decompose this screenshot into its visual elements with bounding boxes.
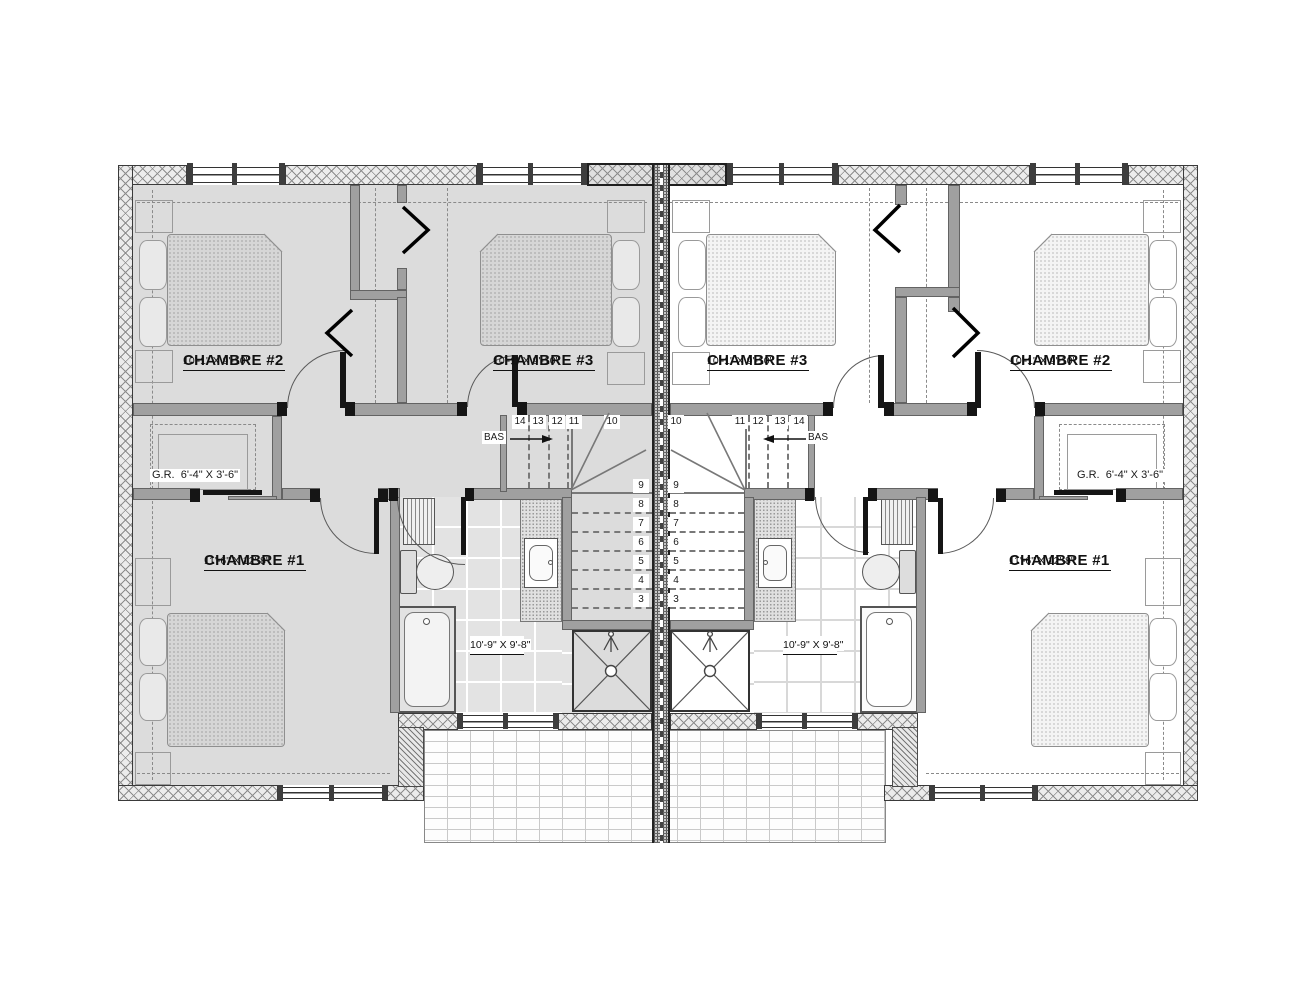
room-dims: 10'-9" X 9'-8"	[470, 639, 531, 651]
stair-number: 11	[566, 415, 582, 429]
closet-wall-l3	[397, 297, 407, 403]
window-post	[477, 163, 483, 185]
room-dims: 10'-1" X 9'-10"	[493, 355, 559, 367]
closet-stub-l1	[397, 185, 407, 203]
stair-tread	[670, 607, 744, 609]
bed-ch1-left	[167, 613, 285, 747]
stair-tread	[572, 512, 652, 514]
stair-tread	[670, 531, 744, 533]
wall-stair-left	[562, 497, 572, 623]
wall-right	[1183, 165, 1198, 801]
bas-label-right: BAS	[806, 431, 830, 444]
window-post	[779, 163, 784, 185]
wall-top-3	[838, 165, 1030, 185]
wall-stair-bottom-right	[670, 620, 754, 630]
bathtub-drain-right	[886, 618, 893, 625]
stair-number: 10	[668, 415, 684, 429]
room-dims: 10'-9" X 9'-8"	[783, 639, 844, 651]
window-bath-left	[458, 715, 558, 728]
window-post	[980, 785, 985, 801]
pillow	[678, 297, 706, 347]
wall-bath-bottom-l2	[558, 713, 652, 730]
pillow	[612, 297, 640, 347]
bathtub-inner-left	[404, 612, 450, 707]
stair-number: 6	[668, 536, 684, 550]
nightstand	[1145, 752, 1181, 785]
door-jamb	[823, 402, 833, 416]
window-post	[187, 163, 193, 185]
wall-stair-edge-right	[808, 415, 815, 492]
stair-tread	[572, 569, 652, 571]
gr-slider-right	[1054, 490, 1113, 495]
door-jamb	[996, 489, 1006, 502]
door-leaf-sbain-left	[461, 497, 466, 555]
window-post	[1032, 785, 1037, 801]
door-jamb	[517, 402, 527, 416]
pillow	[139, 618, 167, 666]
stair-number: 12	[750, 415, 766, 429]
window-post	[553, 713, 558, 729]
stair-number: 6	[633, 536, 649, 550]
wall-jog-left	[398, 727, 424, 787]
window-post	[1075, 163, 1080, 185]
gr-slider-right-2	[1039, 496, 1088, 500]
nightstand	[135, 200, 173, 233]
window-post	[581, 163, 587, 185]
wall-gr-right	[1034, 416, 1044, 500]
window-post	[329, 785, 334, 801]
stair-number: 4	[633, 574, 649, 588]
closet-wall-r3	[895, 297, 907, 403]
wall-stair-edge-left	[500, 415, 507, 492]
nightstand	[1143, 350, 1181, 383]
closet-wall-r1	[948, 185, 960, 297]
window-post	[232, 163, 237, 185]
bas-label-left: BAS	[482, 431, 506, 444]
closet-dash-l2	[447, 188, 448, 403]
door-jamb	[389, 488, 398, 501]
room-dims: 11'-6" X 12'-8"	[1009, 555, 1075, 567]
wall-stair-right	[744, 497, 754, 623]
wall-bottom-3	[884, 785, 930, 801]
stair-number: 4	[668, 574, 684, 588]
window-post	[279, 163, 285, 185]
stair-number: 8	[633, 498, 649, 512]
party-wall-centerline	[660, 165, 663, 843]
wall-h1-l2	[345, 403, 467, 416]
linen-louver-right	[881, 498, 913, 545]
door-jamb	[1035, 402, 1045, 416]
stair-tread	[572, 531, 652, 533]
door-leaf-ch1-right	[938, 498, 943, 554]
gr-slider-left	[203, 490, 262, 495]
wall-h2-r4	[1116, 488, 1183, 500]
wall-top-2	[285, 165, 477, 185]
room-dims: 10'-1" X 9'-10"	[183, 355, 249, 367]
stair-number: 7	[668, 517, 684, 531]
wall-bath-bottom-r1	[670, 713, 757, 730]
wall-jog-right	[892, 727, 918, 787]
nightstand	[135, 350, 173, 383]
door-leaf-ch2-right	[975, 352, 981, 408]
window-post	[278, 785, 283, 801]
gr-jamb-right	[1116, 489, 1126, 502]
window-post	[757, 713, 762, 729]
window-post	[528, 163, 533, 185]
window-post	[930, 785, 935, 801]
stair-tread	[670, 569, 744, 571]
closet-wall-l1	[350, 185, 360, 300]
stair-number: 8	[668, 498, 684, 512]
window-post	[852, 713, 857, 729]
wall-gr-left	[272, 416, 282, 500]
window-post	[503, 713, 508, 729]
door-leaf-ch1-left	[374, 498, 379, 554]
stair-number: 11	[732, 415, 748, 429]
stair-tread	[572, 607, 652, 609]
kneewall-dash-top-left	[137, 202, 647, 203]
window-post	[832, 163, 838, 185]
room-dims: 10'-1" X 9'-10"	[707, 355, 773, 367]
stair-number: 13	[772, 415, 788, 429]
wall-h1-r3	[1035, 403, 1183, 416]
pillow	[678, 240, 706, 290]
window-post	[382, 785, 387, 801]
wall-stair-bottom-left	[562, 620, 652, 630]
bed-ch2-right	[1034, 234, 1149, 346]
room-dims: 10'-1" X 9'-10"	[1010, 355, 1076, 367]
nightstand	[672, 352, 710, 385]
wall-bottom-2	[387, 785, 424, 801]
door-leaf-ch3-right	[878, 355, 884, 408]
door-jamb	[884, 402, 894, 416]
pillow	[139, 240, 167, 290]
door-jamb	[805, 488, 814, 501]
pillow	[612, 240, 640, 290]
gr-label-left: G.R. 6'-4" X 3'-6"	[150, 469, 240, 482]
pillow	[1149, 297, 1177, 347]
nightstand	[607, 200, 645, 233]
stair-number: 12	[549, 415, 565, 429]
door-jamb	[928, 489, 938, 502]
pillow	[1149, 240, 1177, 290]
sink-faucet-left	[548, 560, 553, 565]
window-post	[1122, 163, 1128, 185]
window-post	[727, 163, 733, 185]
stair-number: 14	[512, 415, 528, 429]
pillow	[1149, 673, 1177, 721]
wall-bottom-1	[118, 785, 278, 801]
window-post	[802, 713, 807, 729]
wall-h1-l1	[133, 403, 287, 416]
stair-tread	[572, 550, 652, 552]
closet-stub-r2	[948, 297, 960, 312]
stair-number: 3	[633, 593, 649, 607]
kneewall-dash-bottom-right	[926, 773, 1179, 774]
wall-h2-l4	[467, 488, 572, 500]
gr-jamb-left	[190, 489, 200, 502]
closet-stub-r1	[895, 185, 907, 205]
stair-number: 5	[668, 555, 684, 569]
door-jamb	[345, 402, 355, 416]
gr-label-right: G.R. 6'-4" X 3'-6"	[1075, 469, 1165, 482]
bathtub-inner-right	[866, 612, 912, 707]
shower-right	[670, 630, 750, 712]
stair-number: 3	[668, 593, 684, 607]
sink-faucet-right	[763, 560, 768, 565]
stair-number: 13	[530, 415, 546, 429]
stair-number: 7	[633, 517, 649, 531]
wall-h1-r2	[884, 403, 977, 416]
bed-ch3-left	[480, 234, 612, 346]
stair-tread	[670, 512, 744, 514]
toilet-bowl-right	[862, 554, 900, 590]
bed-ch3-right	[706, 234, 836, 346]
nightstand	[135, 752, 171, 785]
gr-slider-left-2	[228, 496, 277, 500]
wall-left	[118, 165, 133, 801]
door-jamb	[277, 402, 287, 416]
wall-bath-east-right	[916, 497, 926, 713]
kneewall-dash-bottom-left	[137, 773, 390, 774]
kneewall-dash-top-right	[670, 202, 1178, 203]
stair-number: 9	[633, 479, 649, 493]
shower-left	[572, 630, 652, 712]
stair-number: 14	[791, 415, 807, 429]
pillow	[1149, 618, 1177, 666]
stair-number: 5	[633, 555, 649, 569]
closet-wall-r2	[895, 287, 960, 297]
nightstand	[607, 352, 645, 385]
stair-number: 10	[604, 415, 620, 429]
nightstand	[135, 558, 171, 606]
window-post	[1030, 163, 1036, 185]
stair-tread	[767, 416, 769, 488]
door-leaf-ch2-left	[340, 352, 346, 408]
stair-number: 9	[668, 479, 684, 493]
nightstand	[1143, 200, 1181, 233]
bed-ch2-left	[167, 234, 282, 346]
door-jamb	[868, 488, 877, 501]
wall-bottom-4	[1037, 785, 1198, 801]
window-bath-right	[757, 715, 857, 728]
nightstand	[1145, 558, 1181, 606]
pillow	[139, 297, 167, 347]
door-jamb	[310, 489, 320, 502]
stair-tread	[670, 550, 744, 552]
door-jamb	[378, 489, 388, 502]
window-post	[458, 713, 463, 729]
pillow	[139, 673, 167, 721]
door-leaf-sbain-right	[863, 497, 868, 555]
nightstand	[672, 200, 710, 233]
toilet-tank-left	[400, 550, 417, 594]
stair-tread	[670, 588, 744, 590]
door-jamb	[465, 488, 474, 501]
door-jamb	[457, 402, 467, 416]
room-dims: 11'-6" X 12'-8"	[204, 555, 270, 567]
bathtub-drain-left	[423, 618, 430, 625]
bed-ch1-right	[1031, 613, 1149, 747]
wall-bath-west-left	[390, 497, 400, 713]
stair-tread	[572, 588, 652, 590]
closet-stub-l2	[397, 268, 407, 290]
toilet-tank-right	[899, 550, 916, 594]
floor-plan: 14 13 12 11 10 9 8 7 6 5 4 3 10 11 12 13…	[0, 0, 1300, 1005]
